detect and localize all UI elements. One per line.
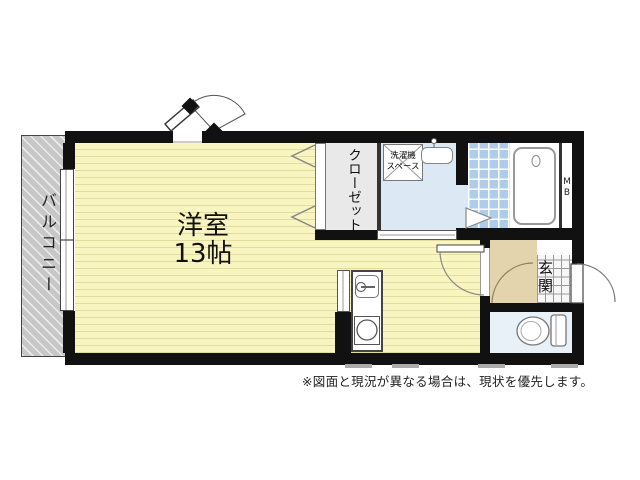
balcony-label: バルコニー <box>31 192 59 297</box>
toilet-door-swing-icon <box>492 263 533 303</box>
tub-drain-icon <box>532 156 540 167</box>
room-label: 洋室 13帖 <box>128 212 278 268</box>
bathroom-folding-door-icon <box>466 208 491 228</box>
closet-folding-door-icon <box>292 206 315 228</box>
meter-box-label: MB <box>562 177 572 199</box>
entrance-label: 玄関 <box>538 260 556 296</box>
faucet-icon <box>432 139 437 144</box>
laundry-line1: 洗濯機 <box>383 151 423 162</box>
toilet-icon <box>551 315 566 346</box>
note-text: ※図面と現況が異なる場合は、現状を優先します。 <box>302 371 593 390</box>
door-swing-icon <box>190 95 245 131</box>
closet-folding-door-icon <box>292 145 315 167</box>
burner-icon <box>357 320 377 340</box>
laundry-space-label: 洗濯機 スペース <box>383 151 423 172</box>
fixtures-overlay <box>0 0 640 480</box>
room-door-swing-icon <box>440 252 484 295</box>
room-door-leaf-icon <box>437 245 484 252</box>
room-name: 洋室 <box>128 212 278 240</box>
closet-label: クローゼット <box>339 148 363 232</box>
floorplan: バルコニー 洋室 13帖 クローゼット 洗濯機 スペース 玄関 MB ※図面と現… <box>0 0 640 480</box>
room-size: 13帖 <box>128 240 278 268</box>
entrance-door-leaf-icon <box>571 264 583 303</box>
laundry-line2: スペース <box>383 162 423 173</box>
